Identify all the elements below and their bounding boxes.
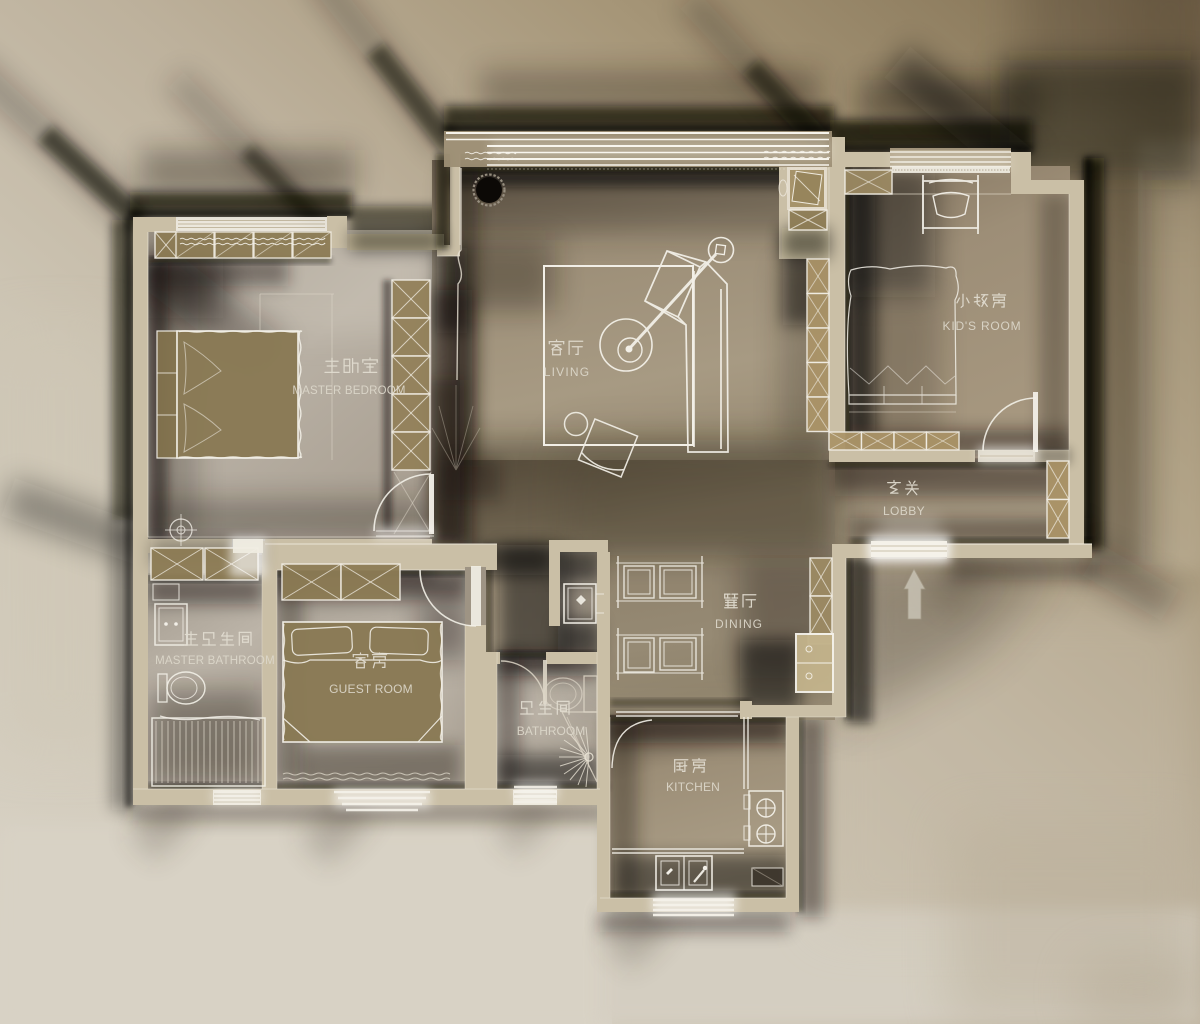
svg-text:MASTER BATHROOM: MASTER BATHROOM	[155, 655, 275, 667]
svg-text:KITCHEN: KITCHEN	[666, 780, 720, 794]
svg-text:BATHROOM: BATHROOM	[517, 724, 585, 738]
svg-text:MASTER BEDROOM: MASTER BEDROOM	[292, 385, 405, 397]
svg-text:LOBBY: LOBBY	[883, 504, 925, 518]
svg-text:LIVING: LIVING	[544, 365, 591, 379]
svg-text:DINING: DINING	[715, 617, 763, 631]
svg-text:KID'S ROOM: KID'S ROOM	[943, 319, 1022, 333]
svg-text:GUEST ROOM: GUEST ROOM	[329, 682, 413, 696]
